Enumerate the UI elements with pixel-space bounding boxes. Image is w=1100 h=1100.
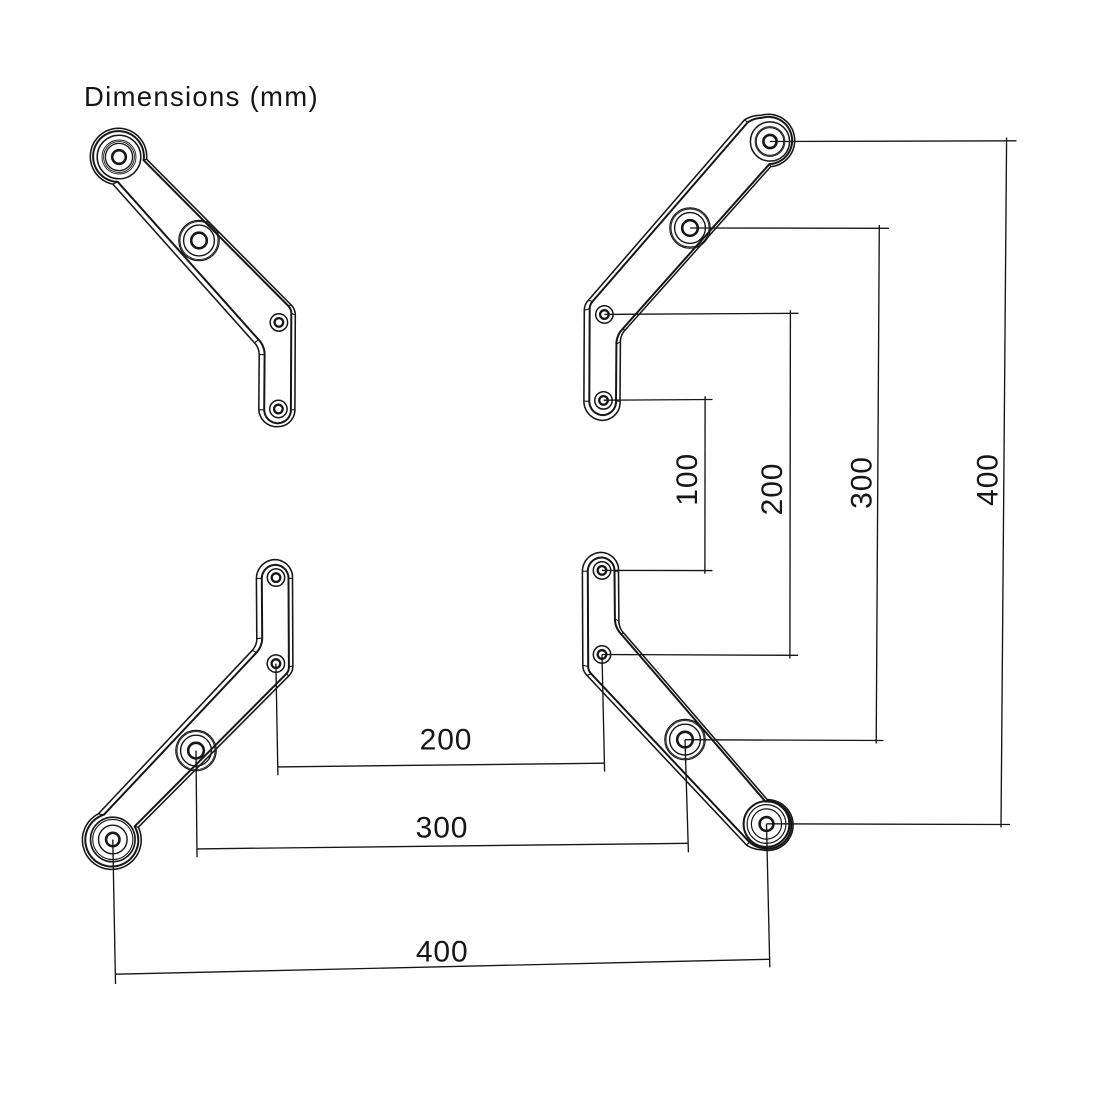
- svg-text:400: 400: [972, 453, 1005, 506]
- svg-text:300: 300: [416, 812, 469, 845]
- svg-text:200: 200: [756, 463, 789, 516]
- svg-text:300: 300: [846, 456, 879, 509]
- svg-text:400: 400: [416, 936, 469, 969]
- svg-text:200: 200: [420, 724, 473, 757]
- svg-text:100: 100: [671, 453, 704, 506]
